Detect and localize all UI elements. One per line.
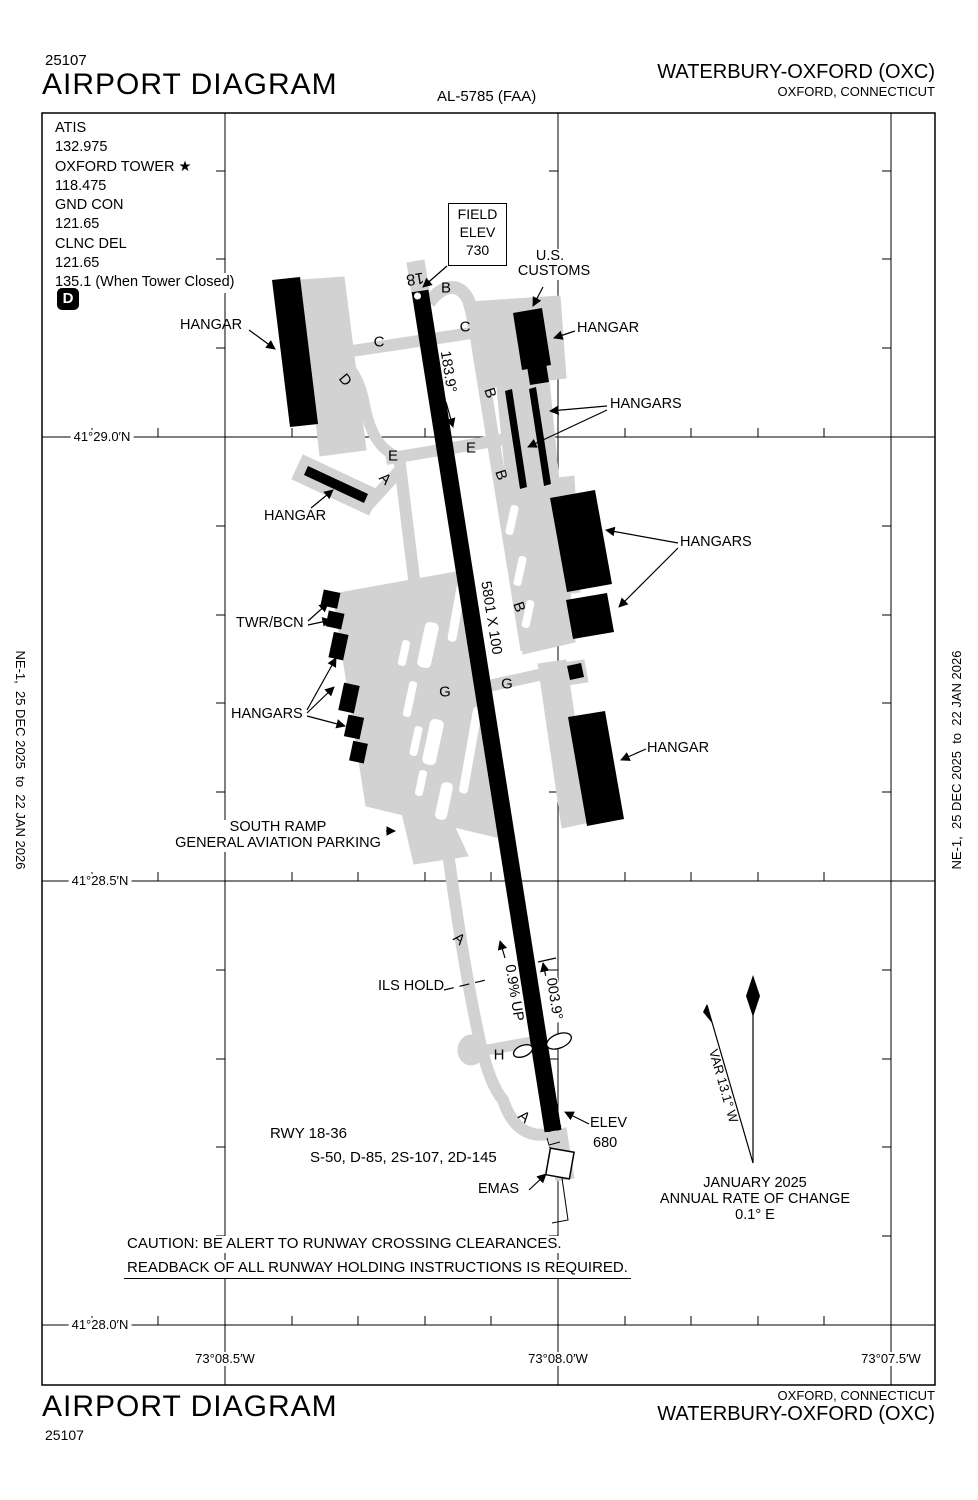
hangars-label-west: HANGARS	[231, 707, 303, 723]
south-ramp-label: GENERAL AVIATION PARKING	[170, 836, 386, 852]
comm-line: GND CON	[55, 196, 125, 215]
variation-date: JANUARY 2025	[655, 1176, 855, 1192]
taxiway-label-h: H	[494, 1047, 505, 1064]
runway-number-36: 36	[543, 1117, 563, 1137]
latitude-label: 41°28.0′N	[69, 1318, 132, 1332]
hangar-label-southeast: HANGAR	[647, 741, 709, 757]
field-elev-line: FIELD	[449, 205, 506, 223]
ils-hold-pad	[458, 1035, 484, 1065]
taxiway-label-c: C	[374, 334, 385, 351]
field-elev-line: ELEV	[449, 223, 506, 241]
taxiway-label-e: E	[388, 448, 398, 465]
comm-line: 121.65	[55, 254, 101, 273]
comm-line: 118.475	[55, 177, 108, 196]
taxiway-label-e: E	[466, 440, 476, 457]
comm-line: 121.65	[55, 215, 101, 234]
taxiway-label-g: G	[439, 684, 451, 701]
taxiway-label-c: C	[460, 319, 471, 336]
south-ramp-label: SOUTH RAMP	[170, 820, 386, 836]
longitude-label: 73°08.0′W	[525, 1352, 591, 1366]
twr-bcn-label: TWR/BCN	[236, 616, 304, 632]
emas-pad	[546, 1148, 574, 1179]
elev-36-label: ELEV	[590, 1116, 627, 1132]
comm-line: ATIS	[55, 119, 88, 138]
heading36-bar	[538, 958, 556, 962]
airport-city-header: OXFORD, CONNECTICUT	[778, 85, 935, 99]
ils-hold-label: ILS HOLD	[378, 979, 444, 995]
runway-info-line1: RWY 18-36	[270, 1126, 347, 1143]
comm-line: CLNC DEL	[55, 235, 129, 254]
airport-diagram-page: 25107 AIRPORT DIAGRAM AL-5785 (FAA) WATE…	[0, 0, 978, 1500]
emas-label: EMAS	[478, 1182, 519, 1198]
us-customs-label: CUSTOMS	[515, 264, 593, 280]
field-elev-value: 730	[449, 241, 506, 259]
runway-number-18: 18	[405, 268, 425, 288]
elev-arrow	[565, 1112, 589, 1124]
airport-name-header: WATERBURY-OXFORD (OXC)	[657, 61, 935, 83]
longitude-label: 73°08.5′W	[192, 1352, 258, 1366]
twr-bcn-building	[321, 590, 341, 609]
north-arrowhead	[746, 975, 760, 1017]
chart-number-bottom: 25107	[45, 1428, 84, 1443]
airport-city-footer: OXFORD, CONNECTICUT	[778, 1389, 935, 1403]
taxiway-label-g: G	[501, 676, 513, 693]
annual-rate-label: ANNUAL RATE OF CHANGE	[655, 1192, 855, 1208]
hangar-east-small	[566, 593, 614, 639]
comm-line: OXFORD TOWER ★	[55, 158, 194, 177]
elev-36-value: 680	[593, 1136, 617, 1152]
runway-end-elevation-dot	[414, 293, 421, 300]
latitude-label: 41°28.5′N	[69, 874, 132, 888]
taxiway-label-b: B	[441, 280, 451, 297]
hangar-label-customs: HANGAR	[577, 321, 639, 337]
effective-dates-right: NE-1, 25 DEC 2025 to 22 JAN 2026	[950, 651, 964, 870]
slope-arrow	[500, 941, 505, 958]
small-building	[567, 663, 584, 680]
emas-leader-line	[552, 1178, 568, 1223]
page-title: AIRPORT DIAGRAM	[42, 68, 338, 101]
airport-name-footer: WATERBURY-OXFORD (OXC)	[657, 1403, 935, 1425]
annual-rate-value: 0.1° E	[655, 1208, 855, 1224]
hangars-label-upper-right: HANGARS	[610, 397, 682, 413]
hangars-label-right: HANGARS	[680, 535, 752, 551]
comm-line: 135.1 (When Tower Closed)	[55, 273, 236, 292]
latitude-label: 41°29.0′N	[71, 430, 134, 444]
runway-info-line2: S-50, D-85, 2S-107, 2D-145	[310, 1150, 497, 1167]
comm-frequencies: ATIS 132.975 OXFORD TOWER ★ 118.475 GND …	[55, 119, 236, 293]
effective-dates-left: NE-1, 25 DEC 2025 to 22 JAN 2026	[13, 651, 27, 870]
field-elevation-box: FIELD ELEV 730	[448, 203, 507, 266]
us-customs-annex	[527, 363, 549, 385]
airport-diagram-d-symbol: D	[57, 288, 79, 310]
caution-line1: CAUTION: BE ALERT TO RUNWAY CROSSING CLE…	[124, 1236, 565, 1253]
longitude-label: 73°07.5′W	[858, 1352, 924, 1366]
magnetic-arrowhead	[703, 1004, 712, 1023]
hangar-label-diagonal: HANGAR	[264, 509, 326, 525]
comm-line: 132.975	[55, 138, 109, 157]
al-number: AL-5785 (FAA)	[437, 89, 536, 106]
page-title-footer: AIRPORT DIAGRAM	[42, 1390, 338, 1423]
emas-arrow	[529, 1174, 546, 1190]
hangar-label-northwest: HANGAR	[180, 318, 242, 334]
caution-line2: READBACK OF ALL RUNWAY HOLDING INSTRUCTI…	[124, 1260, 631, 1279]
